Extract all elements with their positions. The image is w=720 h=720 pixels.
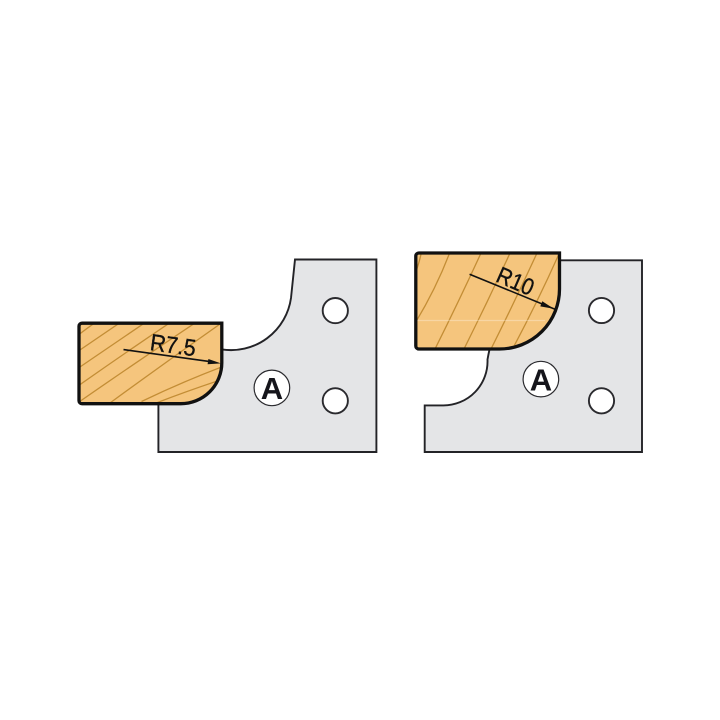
- svg-text:A: A: [261, 371, 283, 406]
- svg-text:A: A: [530, 362, 552, 397]
